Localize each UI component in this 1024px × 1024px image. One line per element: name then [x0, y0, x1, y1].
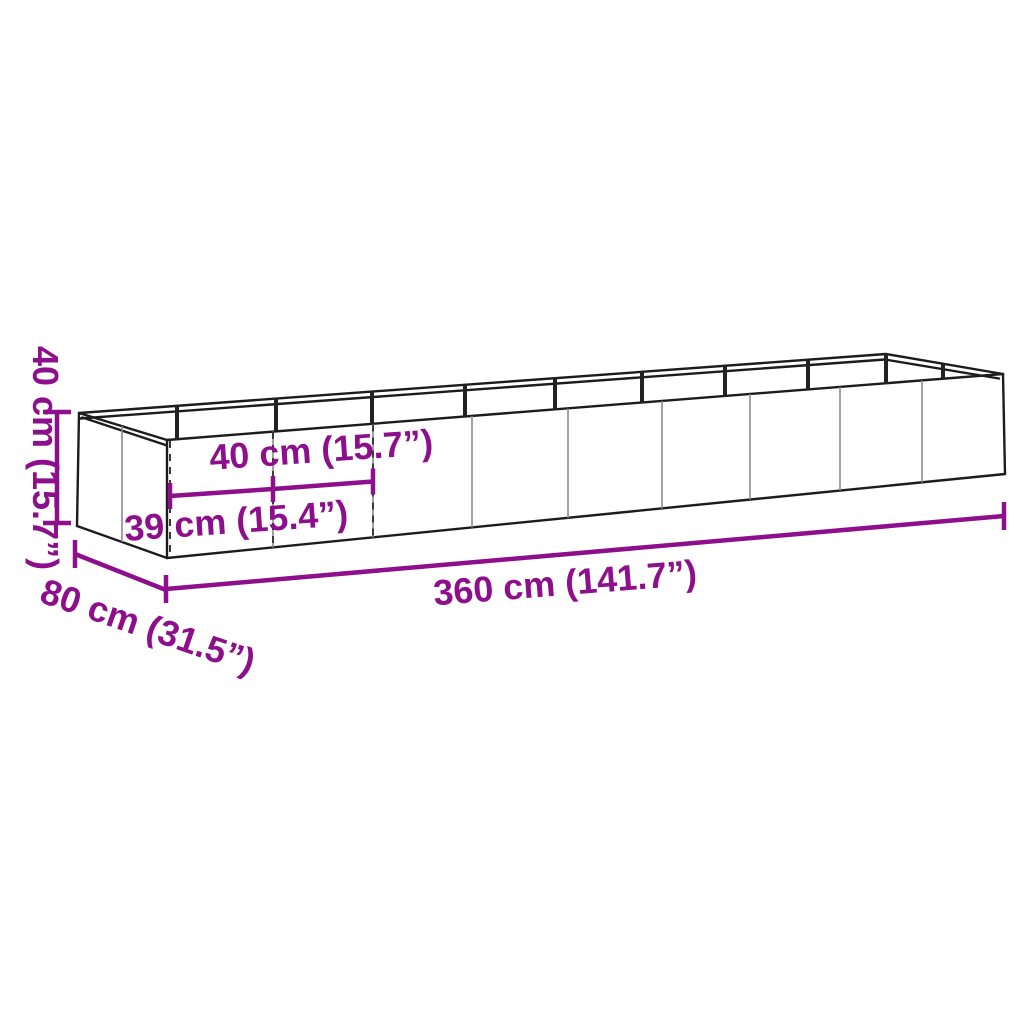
depth-dimension-label: 80 cm (31.5”): [35, 570, 260, 682]
panel-width-bottom-label: 39 cm (15.4”): [123, 492, 349, 549]
left-end-rim-inner-edge: [83, 418, 168, 446]
height-dimension-label: 40 cm (15.7”): [25, 346, 66, 570]
back-rim-outer-edge: [79, 354, 886, 413]
left-end-rim-outer-edge: [79, 413, 167, 440]
right-outer-edge: [1003, 374, 1005, 474]
panel-width-top-label: 40 cm (15.7”): [208, 421, 434, 478]
left-outer-edge: [77, 413, 79, 526]
back-rim-inner-edge: [80, 360, 885, 419]
planter-dimension-diagram: 40 cm (15.7”) 40 cm (15.7”) 39 cm (15.4”…: [0, 0, 1024, 1024]
depth-dimension-line: [75, 540, 166, 590]
